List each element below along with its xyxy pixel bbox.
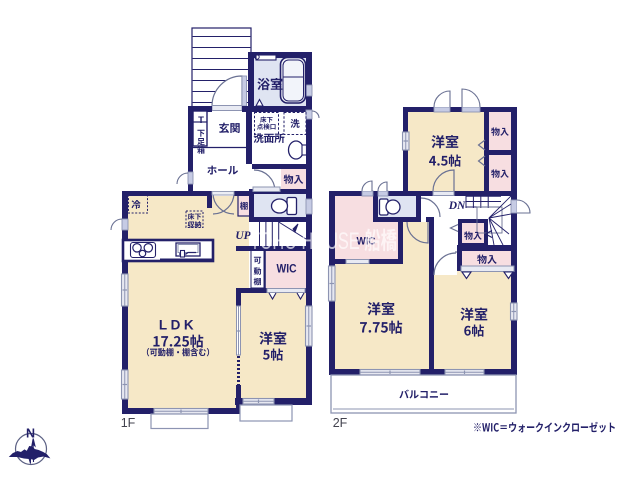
- svg-text:物入: 物入: [477, 251, 497, 266]
- svg-text:物入: 物入: [464, 229, 482, 242]
- svg-text:浴室: 浴室: [257, 74, 283, 93]
- svg-text:2F: 2F: [333, 416, 348, 430]
- svg-text:物入: 物入: [284, 171, 304, 186]
- svg-text:洗: 洗: [290, 116, 300, 130]
- svg-text:1F: 1F: [121, 416, 136, 430]
- svg-text:玄関: 玄関: [219, 120, 241, 136]
- svg-text:※WIC＝ウォークインクローゼット: ※WIC＝ウォークインクローゼット: [473, 420, 616, 436]
- svg-text:棚: 棚: [254, 277, 262, 288]
- svg-text:5帖: 5帖: [263, 345, 284, 364]
- svg-text:（可動棚・棚含む）: （可動棚・棚含む）: [142, 345, 215, 358]
- svg-text:LDK: LDK: [159, 318, 197, 333]
- svg-text:物入: 物入: [491, 125, 509, 138]
- svg-text:バルコニー: バルコニー: [399, 386, 449, 401]
- svg-text:可: 可: [254, 255, 262, 266]
- svg-text:洋室: 洋室: [367, 299, 395, 319]
- svg-text:洗面所: 洗面所: [253, 131, 285, 146]
- svg-text:T: T: [198, 115, 204, 126]
- svg-text:7.75帖: 7.75帖: [359, 318, 402, 338]
- svg-text:動: 動: [254, 266, 262, 277]
- svg-text:6帖: 6帖: [464, 321, 485, 340]
- svg-text:TOHO HOUSE 船橋: TOHO HOUSE 船橋: [250, 228, 397, 255]
- svg-text:収納: 収納: [188, 220, 202, 230]
- svg-text:冷: 冷: [131, 197, 141, 211]
- svg-text:棚: 棚: [240, 200, 249, 212]
- svg-text:洋室: 洋室: [431, 132, 459, 152]
- svg-text:WIC: WIC: [277, 264, 297, 276]
- svg-text:ホール: ホール: [207, 163, 239, 178]
- svg-text:箱: 箱: [197, 145, 205, 156]
- svg-text:物入: 物入: [491, 167, 509, 180]
- svg-text:4.5帖: 4.5帖: [429, 151, 462, 170]
- svg-text:点検口: 点検口: [257, 121, 277, 131]
- svg-text:DN: DN: [448, 200, 466, 212]
